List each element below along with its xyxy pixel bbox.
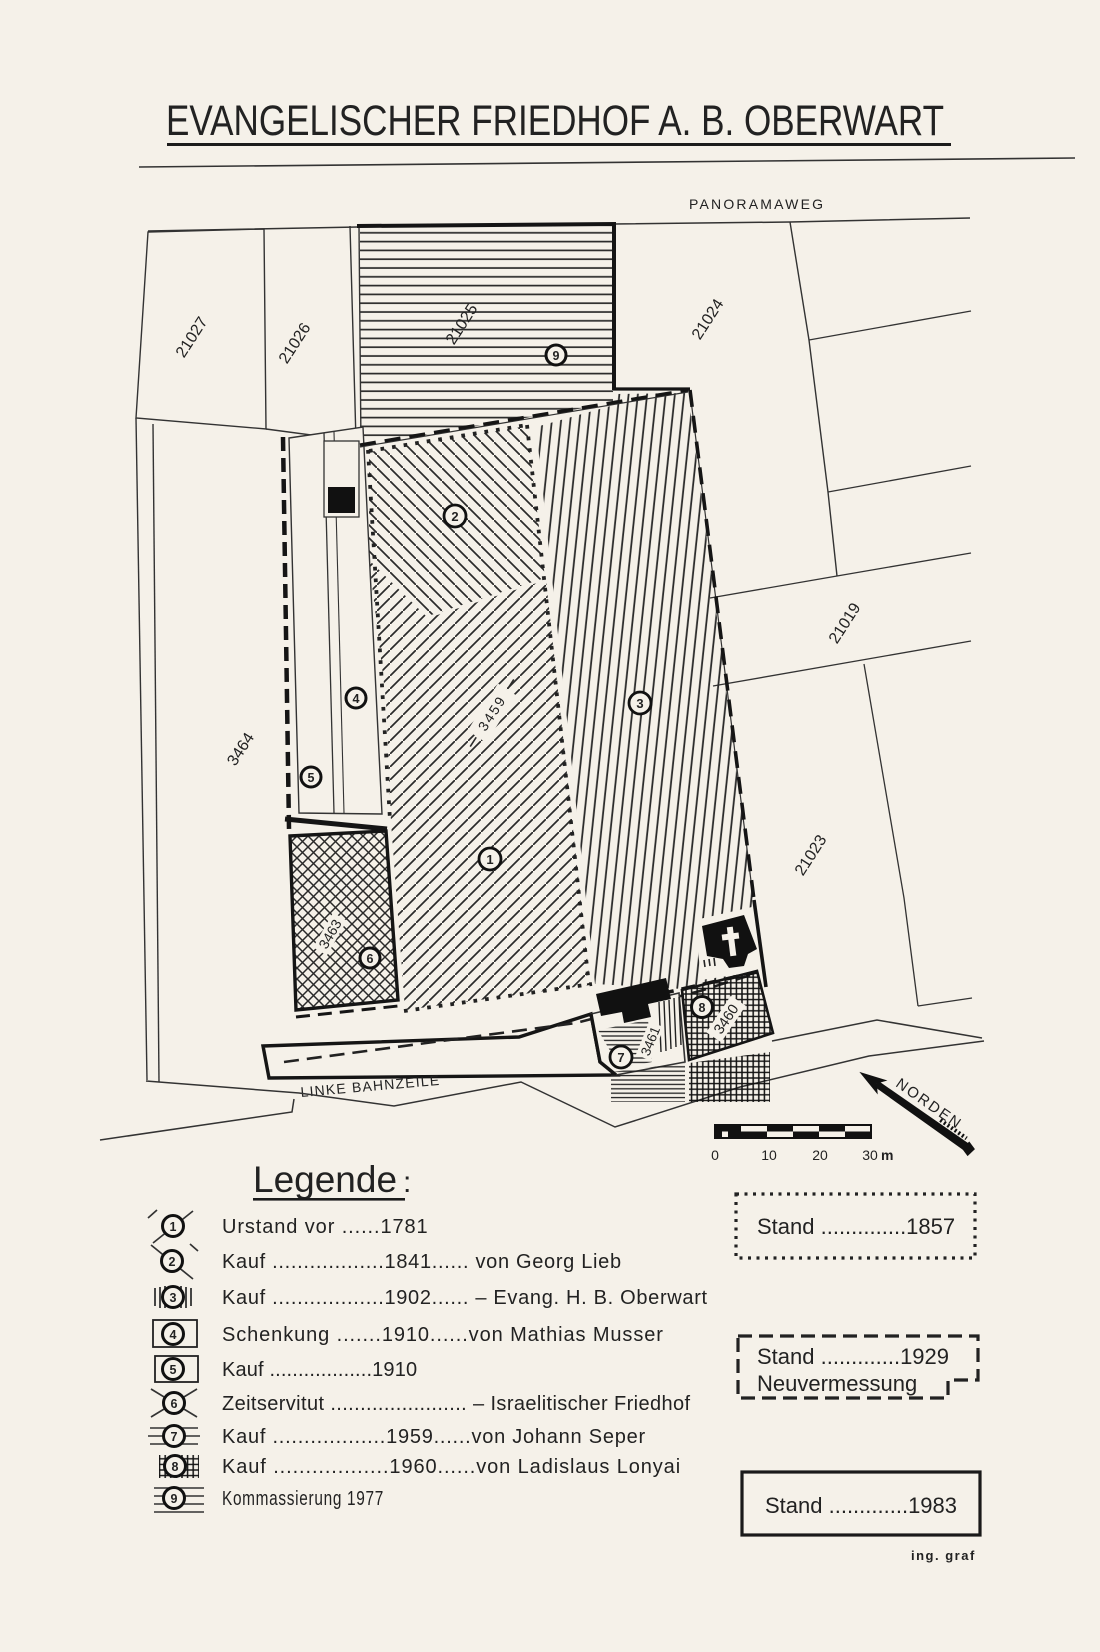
- svg-text:8: 8: [172, 1460, 179, 1474]
- svg-text:EVANGELISCHER FRIEDHOF A. B.: EVANGELISCHER FRIEDHOF A. B. OBERWART: [166, 97, 944, 145]
- svg-text:6: 6: [367, 952, 374, 966]
- svg-text:3: 3: [636, 696, 643, 711]
- svg-text:Kommassierung 1977: Kommassierung 1977: [222, 1488, 384, 1510]
- svg-text:7: 7: [617, 1050, 624, 1065]
- svg-text:Stand .............1929: Stand .............1929: [757, 1344, 949, 1369]
- svg-text:Kauf ..................1960..: Kauf ..................1960......von Lad…: [222, 1456, 681, 1478]
- svg-text:4: 4: [353, 692, 360, 706]
- svg-text:ing. graf: ing. graf: [911, 1548, 976, 1563]
- svg-text:30: 30: [862, 1147, 878, 1163]
- svg-text:Legende:: Legende:: [253, 1159, 411, 1200]
- svg-text:Kauf ..................1841..: Kauf ..................1841...... von Ge…: [222, 1251, 622, 1273]
- svg-text:1: 1: [170, 1220, 177, 1234]
- svg-text:3: 3: [170, 1291, 177, 1305]
- svg-text:8: 8: [699, 1001, 706, 1015]
- svg-text:Kauf ..................1910: Kauf ..................1910: [222, 1359, 418, 1381]
- svg-text:Urstand vor ......1781: Urstand vor ......1781: [222, 1216, 429, 1238]
- svg-text:5: 5: [308, 771, 315, 785]
- svg-text:Schenkung .......1910......vo: Schenkung .......1910......von Mathias M…: [222, 1324, 664, 1346]
- svg-text:20: 20: [812, 1147, 828, 1163]
- svg-text:2: 2: [169, 1255, 176, 1269]
- svg-text:Stand ..............1857: Stand ..............1857: [757, 1214, 955, 1239]
- svg-text:7: 7: [171, 1430, 178, 1444]
- svg-text:0: 0: [711, 1147, 719, 1163]
- svg-text:Zeitservitut ................: Zeitservitut ....................... – I…: [222, 1393, 691, 1415]
- svg-text:m: m: [881, 1147, 893, 1163]
- svg-text:2: 2: [451, 509, 458, 524]
- svg-text:Kauf ..................1902..: Kauf ..................1902...... – Evan…: [222, 1287, 708, 1309]
- svg-text:PANORAMAWEG: PANORAMAWEG: [689, 196, 825, 212]
- svg-text:Neuvermessung: Neuvermessung: [757, 1371, 917, 1396]
- svg-text:5: 5: [170, 1363, 177, 1377]
- svg-text:10: 10: [761, 1147, 777, 1163]
- svg-text:9: 9: [171, 1492, 178, 1506]
- svg-text:4: 4: [170, 1328, 177, 1342]
- svg-text:Kauf ..................1959..: Kauf ..................1959......von Joh…: [222, 1426, 646, 1448]
- svg-text:9: 9: [553, 349, 560, 363]
- svg-text:1: 1: [486, 852, 493, 867]
- svg-text:6: 6: [171, 1397, 178, 1411]
- svg-text:Stand .............1983: Stand .............1983: [765, 1493, 957, 1518]
